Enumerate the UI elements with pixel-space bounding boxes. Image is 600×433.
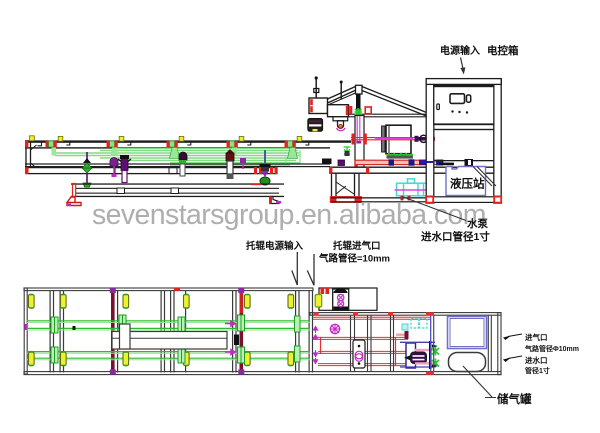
svg-text:sevenstarsgroup.en.alibaba.com: sevenstarsgroup.en.alibaba.com [92, 199, 486, 231]
svg-text:进水口管径1寸: 进水口管径1寸 [421, 230, 490, 243]
svg-text:托辊电源输入: 托辊电源输入 [246, 240, 304, 252]
svg-text:电控箱: 电控箱 [487, 44, 519, 57]
svg-text:进水口: 进水口 [525, 355, 548, 365]
svg-text:管径1寸: 管径1寸 [525, 366, 550, 375]
svg-text:气路管径Φ10mm: 气路管径Φ10mm [524, 344, 579, 353]
svg-text:液压站: 液压站 [450, 177, 485, 191]
svg-text:储气罐: 储气罐 [497, 392, 532, 406]
svg-text:水泵: 水泵 [466, 217, 488, 230]
svg-text:电源输入: 电源输入 [440, 44, 480, 57]
svg-text:气路管径=10mm: 气路管径=10mm [318, 253, 390, 265]
svg-text:托辊进气口: 托辊进气口 [333, 240, 381, 252]
svg-text:进气口: 进气口 [525, 332, 548, 342]
